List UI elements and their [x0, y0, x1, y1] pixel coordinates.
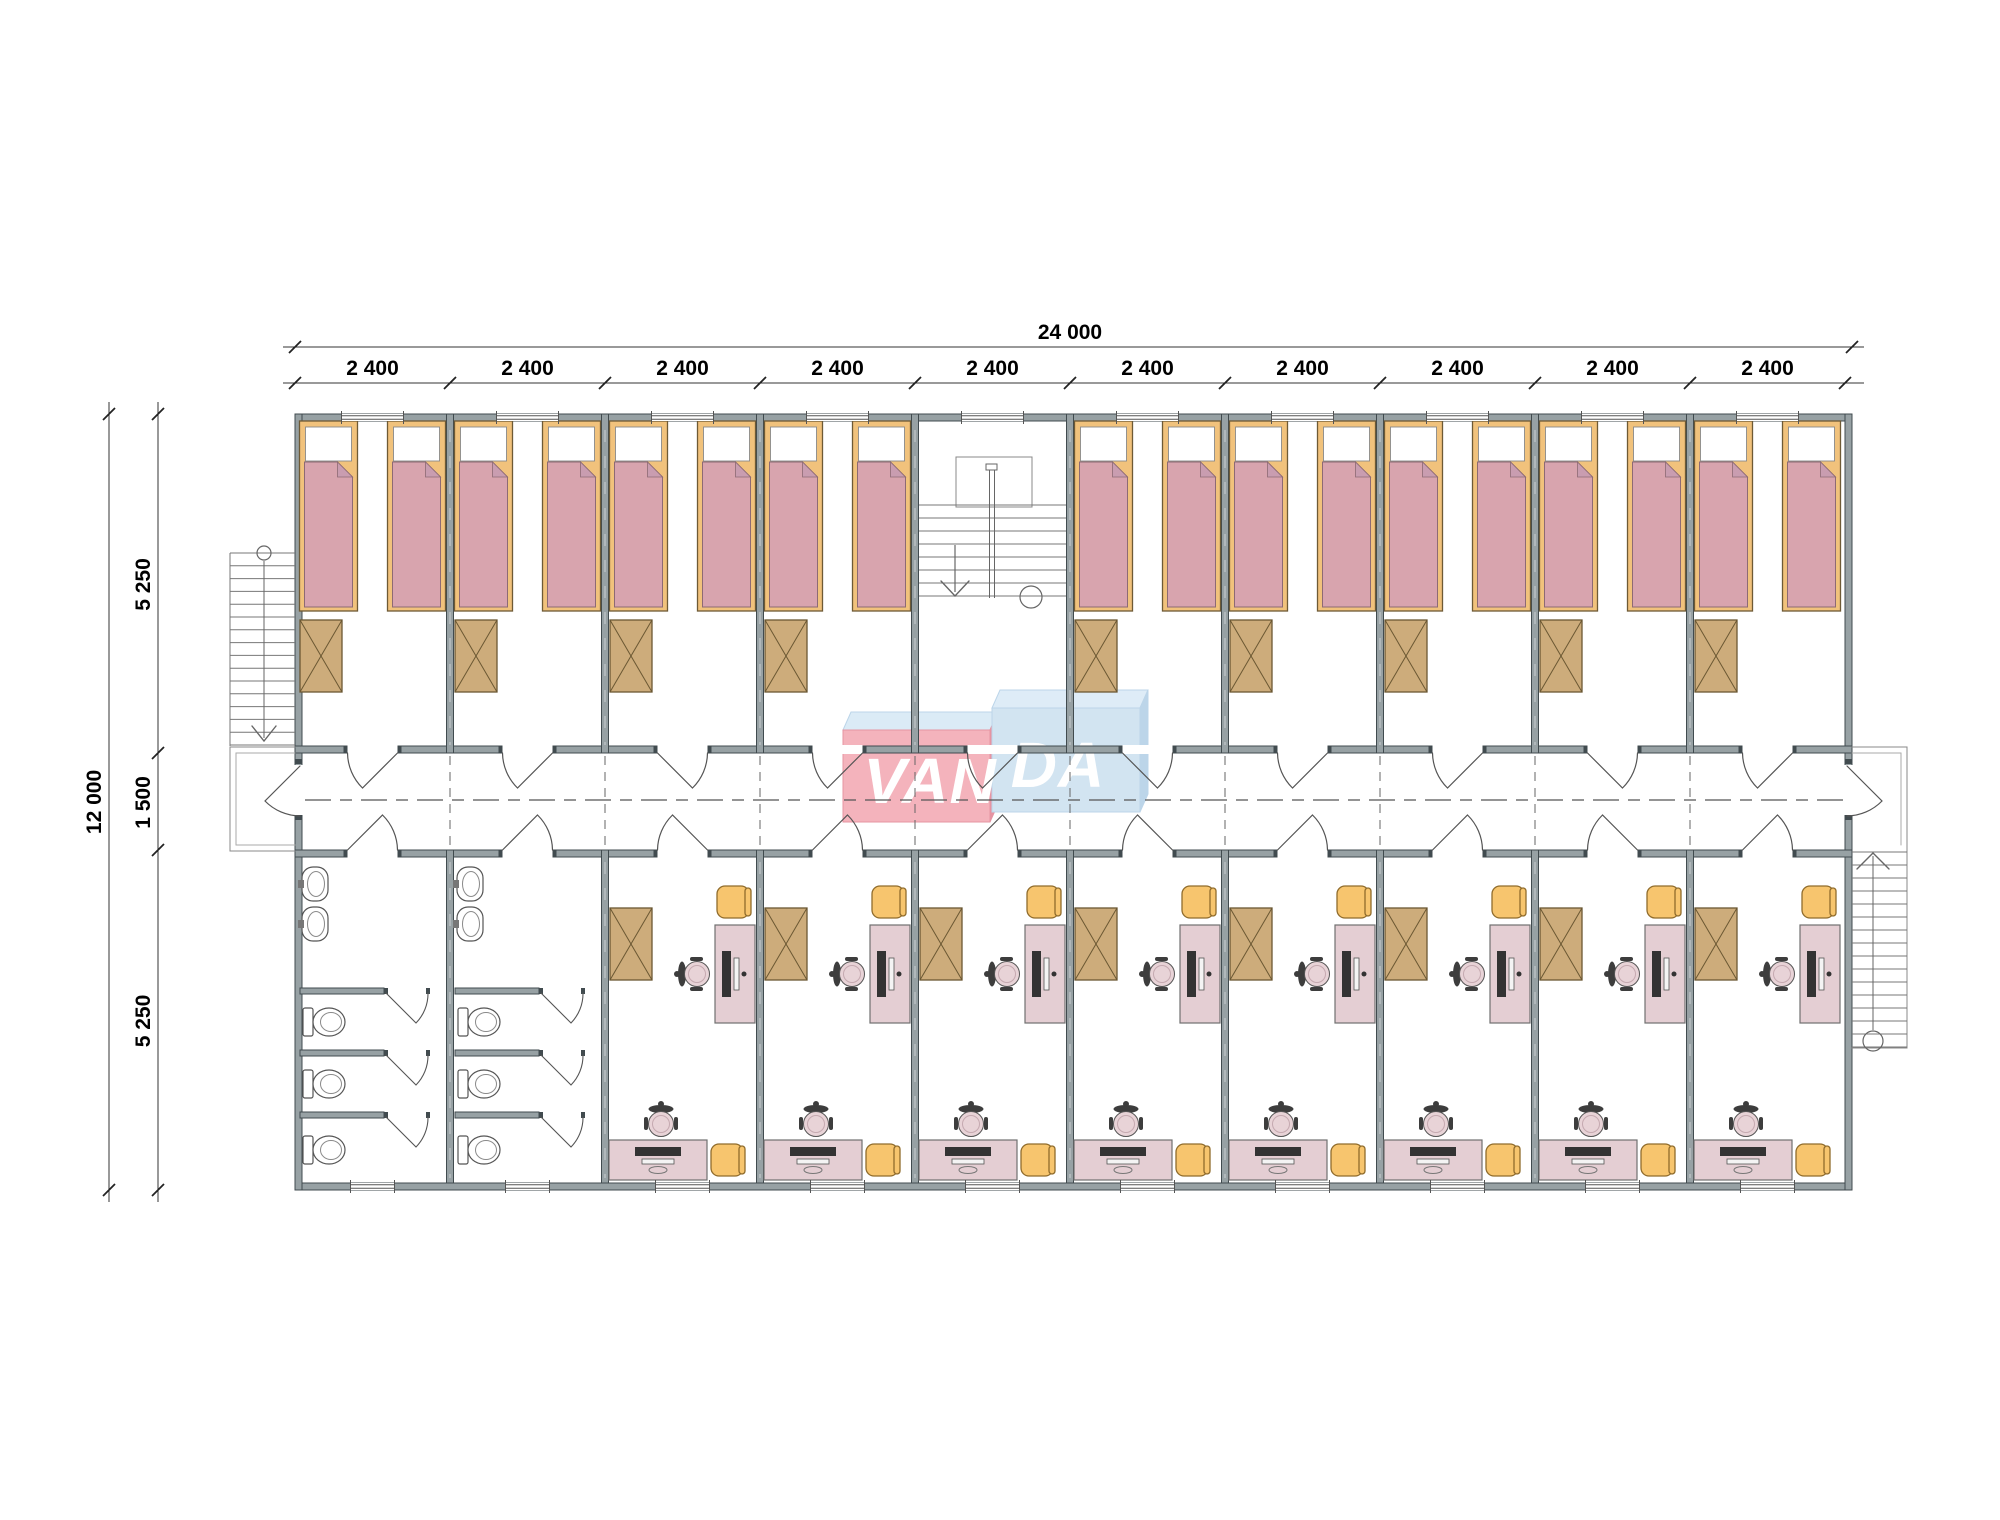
side-chair [1492, 886, 1526, 918]
bed [698, 421, 756, 611]
wardrobe [1540, 908, 1582, 980]
bed [853, 421, 911, 611]
side-chair [1647, 886, 1681, 918]
desk [1180, 925, 1220, 1023]
bed [1385, 421, 1443, 611]
wardrobe [610, 908, 652, 980]
desk [1694, 1140, 1792, 1180]
desk [1384, 1140, 1482, 1180]
bed [1540, 421, 1598, 611]
svg-text:2 400: 2 400 [501, 357, 554, 380]
svg-text:2 400: 2 400 [1586, 357, 1639, 380]
svg-text:24 000: 24 000 [1038, 321, 1102, 344]
svg-text:5 250: 5 250 [132, 558, 155, 611]
wardrobe [920, 908, 962, 980]
floor-plan-page: VANDA24 0002 4002 4002 4002 4002 4002 40… [0, 0, 2000, 1520]
bed [765, 421, 823, 611]
side-chair [1331, 1144, 1365, 1176]
bed [1230, 421, 1288, 611]
side-chair [1021, 1144, 1055, 1176]
svg-text:2 400: 2 400 [656, 357, 709, 380]
svg-text:1 500: 1 500 [132, 776, 155, 829]
desk [715, 925, 755, 1023]
desk [609, 1140, 707, 1180]
toilet [303, 1070, 345, 1098]
wardrobe [455, 620, 497, 692]
svg-text:2 400: 2 400 [346, 357, 399, 380]
bed [388, 421, 446, 611]
toilet [458, 1136, 500, 1164]
desk [870, 925, 910, 1023]
desk [1490, 925, 1530, 1023]
side-chair [1802, 886, 1836, 918]
svg-text:2 400: 2 400 [966, 357, 1019, 380]
toilet [458, 1070, 500, 1098]
wardrobe [1075, 620, 1117, 692]
side-chair [1641, 1144, 1675, 1176]
wardrobe [300, 620, 342, 692]
side-chair [717, 886, 751, 918]
wardrobe [1075, 908, 1117, 980]
logo-text-da: DA [1011, 729, 1105, 801]
desk [764, 1140, 862, 1180]
svg-text:2 400: 2 400 [1431, 357, 1484, 380]
side-chair [872, 886, 906, 918]
desk [1074, 1140, 1172, 1180]
side-chair [1027, 886, 1061, 918]
wardrobe [765, 908, 807, 980]
desk [1335, 925, 1375, 1023]
bed [610, 421, 668, 611]
side-chair [1486, 1144, 1520, 1176]
svg-text:5 250: 5 250 [132, 995, 155, 1048]
toilet [303, 1008, 345, 1036]
side-chair [711, 1144, 745, 1176]
floor-plan-canvas: VANDA24 0002 4002 4002 4002 4002 4002 40… [0, 0, 2000, 1520]
desk [1645, 925, 1685, 1023]
bed [1075, 421, 1133, 611]
desk [1025, 925, 1065, 1023]
toilet [303, 1136, 345, 1164]
bed [543, 421, 601, 611]
wardrobe [1385, 908, 1427, 980]
side-chair [1182, 886, 1216, 918]
side-chair [1796, 1144, 1830, 1176]
desk [1800, 925, 1840, 1023]
wardrobe [1230, 620, 1272, 692]
svg-text:2 400: 2 400 [1276, 357, 1329, 380]
side-chair [1337, 886, 1371, 918]
desk [1539, 1140, 1637, 1180]
bed [1318, 421, 1376, 611]
wardrobe [1695, 620, 1737, 692]
bed [1163, 421, 1221, 611]
side-chair [1176, 1144, 1210, 1176]
wardrobe [1385, 620, 1427, 692]
svg-text:12 000: 12 000 [83, 770, 106, 834]
bed [1473, 421, 1531, 611]
svg-text:2 400: 2 400 [811, 357, 864, 380]
side-chair [866, 1144, 900, 1176]
wardrobe [1540, 620, 1582, 692]
bed [300, 421, 358, 611]
wardrobe [1695, 908, 1737, 980]
svg-text:2 400: 2 400 [1121, 357, 1174, 380]
desk [1229, 1140, 1327, 1180]
bed [1628, 421, 1686, 611]
wardrobe [765, 620, 807, 692]
wardrobe [610, 620, 652, 692]
desk [919, 1140, 1017, 1180]
svg-text:2 400: 2 400 [1741, 357, 1794, 380]
logo-text-van: VAN [863, 745, 997, 817]
toilet [458, 1008, 500, 1036]
wardrobe [1230, 908, 1272, 980]
bed [1783, 421, 1841, 611]
bed [1695, 421, 1753, 611]
bed [455, 421, 513, 611]
